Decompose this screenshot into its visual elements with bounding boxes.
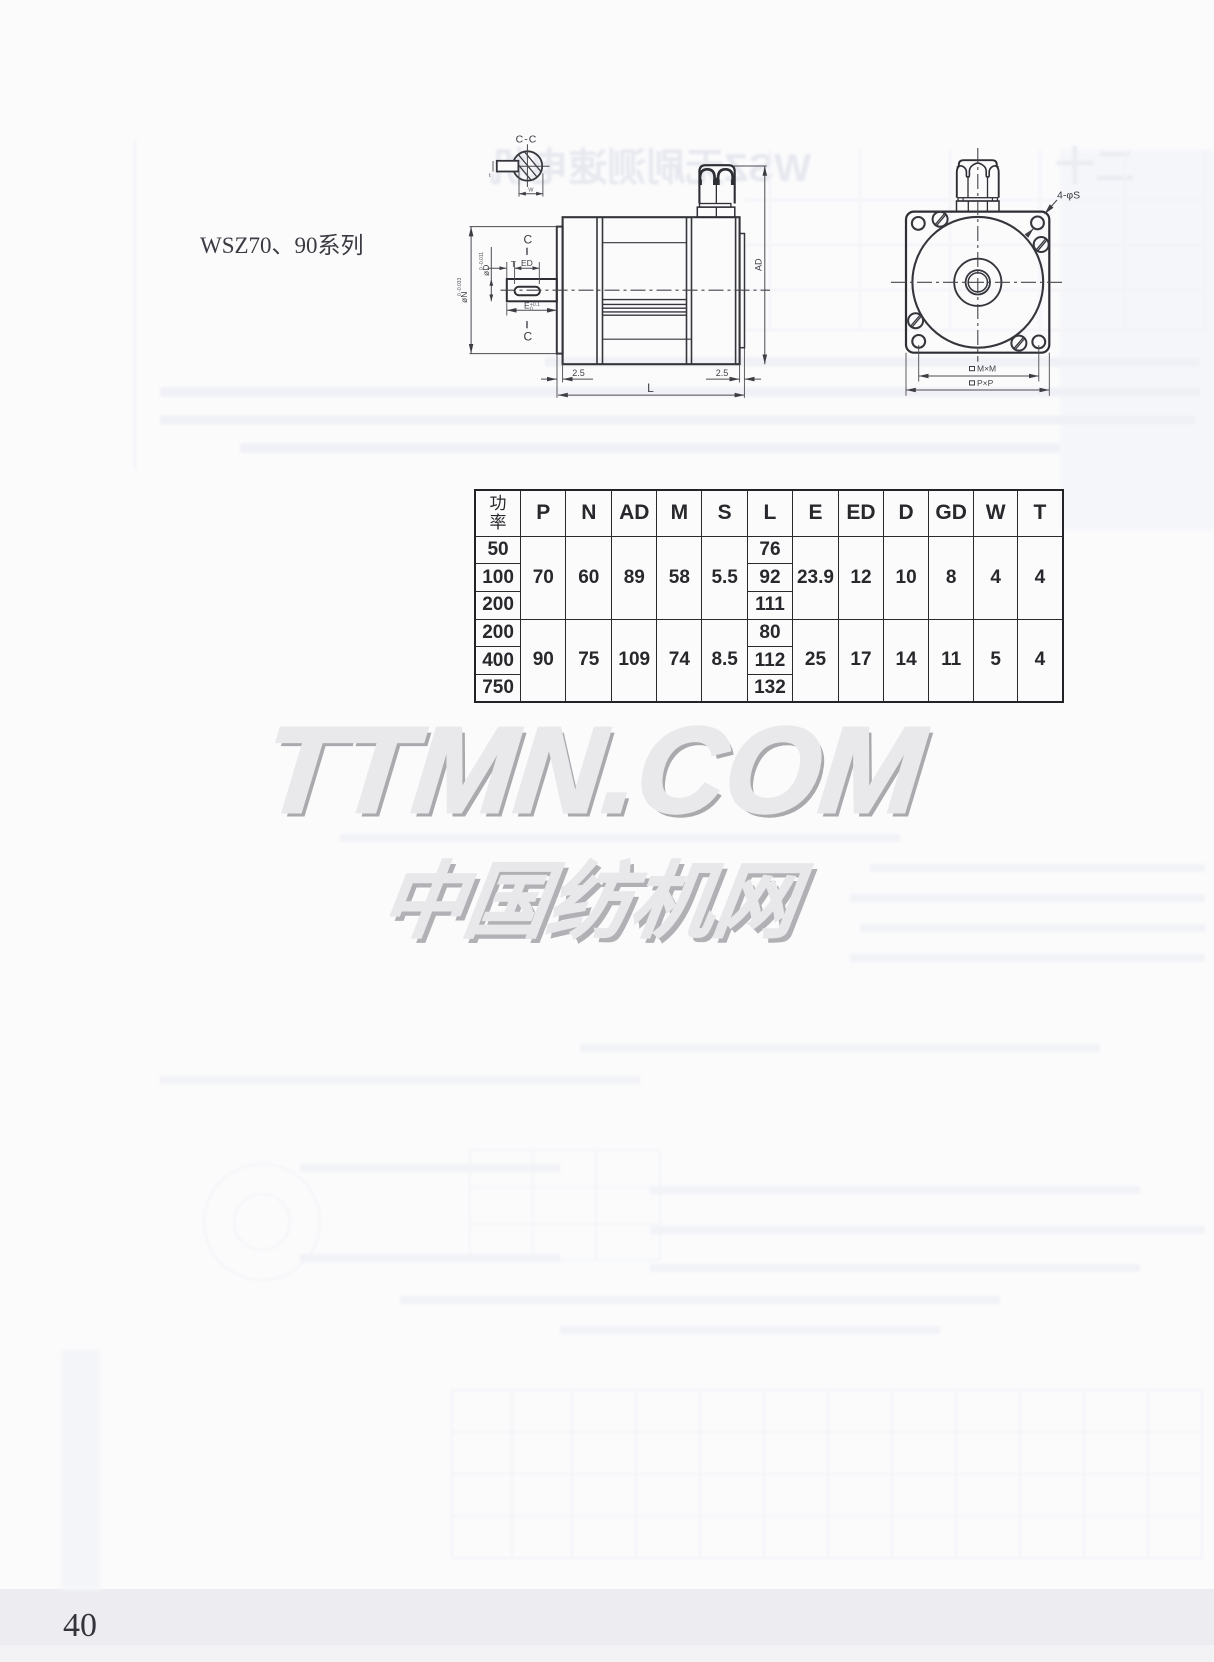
svg-text:P×P: P×P [977,378,994,388]
svg-text:M×M: M×M [977,364,996,374]
svg-text:C: C [523,233,532,247]
svg-text:4-φS: 4-φS [1057,190,1080,202]
svg-text:C-C: C-C [516,134,538,146]
svg-text:t: t [489,173,491,179]
svg-text:ED: ED [521,258,533,268]
svg-text:0: 0 [530,307,533,313]
svg-text:T: T [511,259,516,269]
svg-text:W: W [528,188,534,194]
svg-text:AD: AD [754,258,764,271]
svg-text:2.5: 2.5 [572,368,585,378]
svg-text:C: C [523,330,532,344]
svg-text:2.5: 2.5 [716,368,729,378]
svg-text:0 -0.033: 0 -0.033 [457,277,463,296]
svg-text:L: L [647,381,654,395]
svg-text:0 -0.011: 0 -0.011 [479,252,485,270]
